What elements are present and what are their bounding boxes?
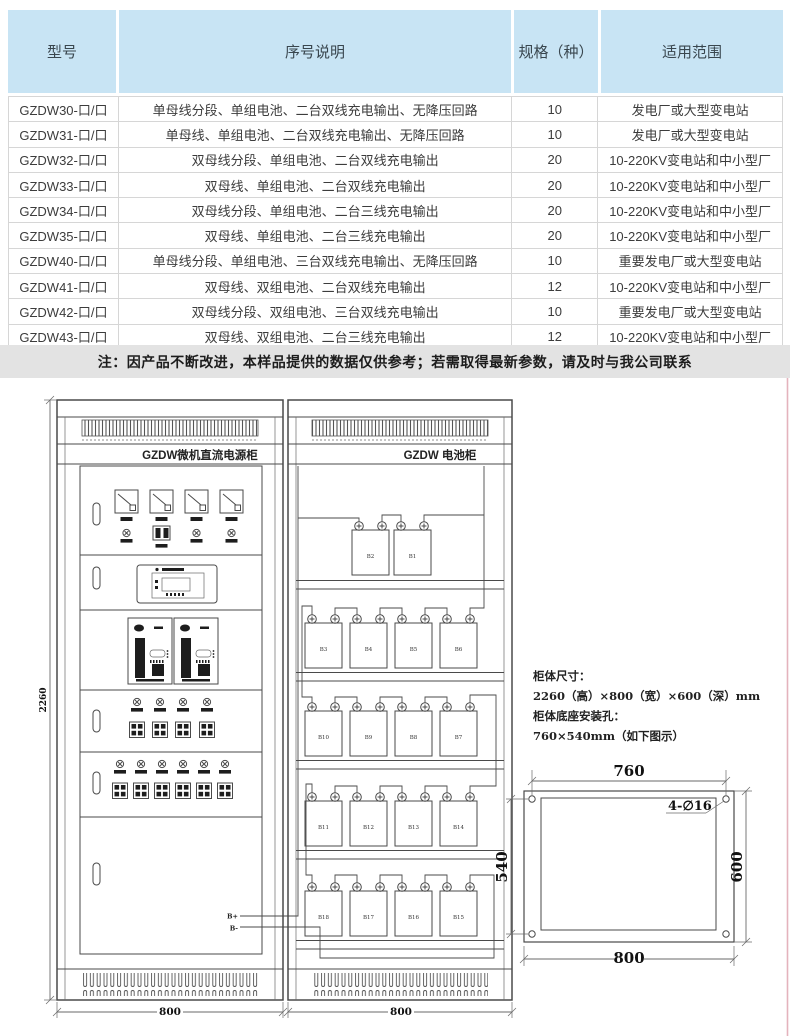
cell-scope: 10-220KV变电站和中小型厂 — [598, 198, 782, 222]
mounting-hole-diagram — [506, 770, 752, 966]
svg-text:B18: B18 — [318, 915, 330, 921]
table-row: GZDW42-口/口 双母线分段、双组电池、三台双线充电输出 10 重要发电厂或… — [9, 299, 782, 324]
vent-grille — [82, 420, 258, 436]
cell-spec: 10 — [512, 122, 598, 146]
mounting-hole — [529, 931, 535, 937]
door-handle — [93, 772, 100, 794]
mount-dim-top: 760 — [613, 762, 644, 780]
spec-line: 760×540mm（如下图示） — [533, 726, 773, 746]
base-louver — [82, 973, 258, 996]
cell-desc: 双母线、单组电池、二台三线充电输出 — [119, 223, 512, 247]
svg-text:B4: B4 — [365, 647, 373, 653]
svg-text:B16: B16 — [408, 915, 420, 921]
cell-model: GZDW32-口/口 — [9, 148, 119, 172]
cell-desc: 单母线分段、单组电池、二台双线充电输出、无降压回路 — [119, 97, 512, 121]
spec-line: 2260（高）×800（宽）×600（深）mm — [533, 686, 773, 706]
table-row: GZDW35-口/口 双母线、单组电池、二台三线充电输出 20 10-220KV… — [9, 223, 782, 248]
mounting-hole — [723, 931, 729, 937]
svg-text:800: 800 — [390, 1006, 412, 1018]
svg-text:B13: B13 — [408, 825, 420, 831]
svg-text:B2: B2 — [367, 554, 375, 560]
cell-scope: 10-220KV变电站和中小型厂 — [598, 223, 782, 247]
cell-model: GZDW30-口/口 — [9, 97, 119, 121]
cell-scope: 重要发电厂或大型变电站 — [598, 249, 782, 273]
cell-desc: 单母线分段、单组电池、三台双线充电输出、无降压回路 — [119, 249, 512, 273]
table-row: GZDW34-口/口 双母线分段、单组电池、二台三线充电输出 20 10-220… — [9, 198, 782, 223]
svg-text:B6: B6 — [455, 647, 463, 653]
cell-spec: 10 — [512, 249, 598, 273]
svg-text:B17: B17 — [363, 915, 375, 921]
terminal-positive-label: B+ — [227, 913, 238, 921]
door-handle — [93, 863, 100, 885]
table-row: GZDW30-口/口 单母线分段、单组电池、二台双线充电输出、无降压回路 10 … — [9, 97, 782, 122]
svg-text:B1: B1 — [409, 554, 417, 560]
cell-model: GZDW40-口/口 — [9, 249, 119, 273]
svg-text:B9: B9 — [365, 735, 373, 741]
door-handle — [93, 710, 100, 732]
svg-text:B15: B15 — [453, 915, 465, 921]
cell-desc: 双母线分段、单组电池、二台双线充电输出 — [119, 148, 512, 172]
indicator-lamps — [121, 526, 238, 548]
cell-model: GZDW42-口/口 — [9, 299, 119, 323]
cell-spec: 20 — [512, 198, 598, 222]
door-handle — [93, 567, 100, 589]
svg-text:B7: B7 — [455, 735, 463, 741]
cell-scope: 10-220KV变电站和中小型厂 — [598, 173, 782, 197]
cell-model: GZDW34-口/口 — [9, 198, 119, 222]
cell-desc: 双母线、单组电池、二台双线充电输出 — [119, 173, 512, 197]
power-cabinet-title: GZDW微机直流电源柜 — [142, 448, 258, 462]
mount-dim-left: 540 — [493, 851, 511, 882]
power-cabinet-drawing — [57, 400, 283, 1000]
cell-model: GZDW35-口/口 — [9, 223, 119, 247]
table-row: GZDW32-口/口 双母线分段、单组电池、二台双线充电输出 20 10-220… — [9, 148, 782, 173]
cell-model: GZDW33-口/口 — [9, 173, 119, 197]
product-sheet-page: 型号 序号说明 规格（种） 适用范围 GZDW30-口/口 单母线分段、单组电池… — [0, 0, 790, 1036]
svg-text:B10: B10 — [318, 735, 330, 741]
breaker-row-a — [130, 698, 215, 737]
header-desc: 序号说明 — [119, 10, 511, 93]
cell-scope: 发电厂或大型变电站 — [598, 97, 782, 121]
cell-spec: 10 — [512, 97, 598, 121]
cell-spec: 20 — [512, 173, 598, 197]
monitor-panel — [137, 565, 217, 603]
svg-text:800: 800 — [159, 1006, 181, 1018]
cabinet-spec-text: 柜体尺寸： 2260（高）×800（宽）×600（深）mm 柜体底座安装孔： 7… — [533, 666, 773, 746]
header-spec: 规格（种） — [514, 10, 598, 93]
analog-meters — [115, 490, 243, 521]
svg-text:B5: B5 — [410, 647, 418, 653]
spec-table: 型号 序号说明 规格（种） 适用范围 GZDW30-口/口 单母线分段、单组电池… — [8, 10, 783, 350]
battery-cabinet-title: GZDW 电池柜 — [404, 448, 477, 462]
charger-modules — [128, 618, 218, 684]
svg-text:B3: B3 — [320, 647, 328, 653]
cell-desc: 双母线分段、单组电池、二台三线充电输出 — [119, 198, 512, 222]
battery-bank — [305, 522, 477, 936]
vent-grille — [312, 420, 488, 436]
base-louver — [312, 973, 488, 996]
battery-labels: B2 B1 B3 B4 B5 B6 B10 B9 B8 B7 B11 B12 B… — [318, 554, 465, 921]
svg-text:B8: B8 — [410, 735, 418, 741]
header-scope: 适用范围 — [601, 10, 783, 93]
cell-scope: 发电厂或大型变电站 — [598, 122, 782, 146]
cell-spec: 20 — [512, 223, 598, 247]
mounting-hole — [529, 796, 535, 802]
height-dimension-label: 2260 — [39, 687, 49, 712]
terminal-negative-label: B- — [230, 925, 239, 933]
cell-model: GZDW41-口/口 — [9, 274, 119, 298]
cell-scope: 10-220KV变电站和中小型厂 — [598, 274, 782, 298]
battery-wiring — [240, 466, 496, 958]
table-row: GZDW41-口/口 双母线、双组电池、二台双线充电输出 12 10-220KV… — [9, 274, 782, 299]
spec-table-header: 型号 序号说明 规格（种） 适用范围 — [8, 10, 783, 93]
cell-spec: 20 — [512, 148, 598, 172]
cell-desc: 单母线、单组电池、二台双线充电输出、无降压回路 — [119, 122, 512, 146]
cell-spec: 12 — [512, 274, 598, 298]
svg-text:B11: B11 — [318, 825, 329, 831]
mount-holes-label: 4-∅16 — [668, 799, 712, 814]
door-handle — [93, 503, 100, 525]
spec-line: 柜体底座安装孔： — [533, 706, 773, 726]
mount-dim-bottom: 800 — [613, 949, 644, 967]
header-model: 型号 — [8, 10, 116, 93]
spec-table-body: GZDW30-口/口 单母线分段、单组电池、二台双线充电输出、无降压回路 10 … — [8, 96, 783, 350]
cell-desc: 双母线分段、双组电池、三台双线充电输出 — [119, 299, 512, 323]
breaker-row-b — [113, 760, 233, 798]
table-row: GZDW40-口/口 单母线分段、单组电池、三台双线充电输出、无降压回路 10 … — [9, 249, 782, 274]
cell-spec: 10 — [512, 299, 598, 323]
table-row: GZDW33-口/口 双母线、单组电池、二台双线充电输出 20 10-220KV… — [9, 173, 782, 198]
cell-desc: 双母线、双组电池、二台双线充电输出 — [119, 274, 512, 298]
disclaimer-note: 注：因产品不断改进，本样品提供的数据仅供参考；若需取得最新参数，请及时与我公司联… — [0, 345, 790, 378]
cell-scope: 重要发电厂或大型变电站 — [598, 299, 782, 323]
svg-text:B12: B12 — [363, 825, 374, 831]
mount-dim-right: 600 — [728, 851, 746, 882]
svg-text:B14: B14 — [453, 825, 465, 831]
cell-model: GZDW31-口/口 — [9, 122, 119, 146]
battery-cabinet-drawing — [240, 400, 512, 1000]
spec-line: 柜体尺寸： — [533, 666, 773, 686]
table-row: GZDW31-口/口 单母线、单组电池、二台双线充电输出、无降压回路 10 发电… — [9, 122, 782, 147]
cell-scope: 10-220KV变电站和中小型厂 — [598, 148, 782, 172]
